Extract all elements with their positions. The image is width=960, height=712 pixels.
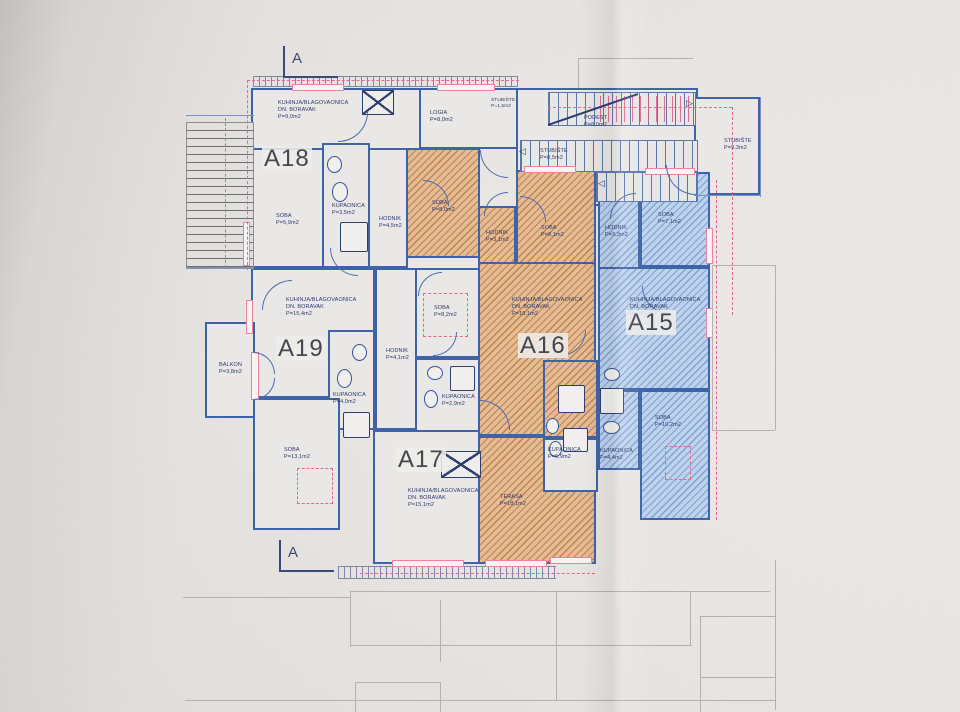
- window-10: [550, 557, 592, 564]
- window-11: [392, 560, 464, 567]
- roofline-6: [716, 180, 717, 520]
- soba-13-1-outline: [297, 468, 333, 504]
- sanitary-fixture-icon-10: [546, 418, 559, 434]
- lower-level-outline-17: [712, 430, 775, 431]
- roofline-0: [247, 80, 519, 81]
- exterior-line-2: [186, 115, 254, 116]
- lower-level-outline-19: [578, 58, 693, 59]
- sanitary-fixture-icon-3: [352, 344, 367, 361]
- window-7: [706, 228, 713, 264]
- room-label-29: ◁: [598, 178, 605, 190]
- room-label-17: HODNIKP=4,1m2: [386, 348, 409, 362]
- room-label-8: HODNIKP=4,5m2: [379, 216, 402, 230]
- roofline-1: [247, 80, 248, 270]
- room-label-21: KUPAONICAP=2,9m2: [442, 394, 475, 408]
- exterior-line-1: [694, 195, 761, 196]
- sanitary-fixture-icon-4: [337, 369, 352, 388]
- room-label-6: SOBAP=5,9m2: [276, 213, 299, 227]
- sanitary-fixture-icon-15: [603, 421, 620, 434]
- section-marker-line-v-1: [279, 540, 281, 571]
- lower-level-outline-5: [350, 645, 692, 646]
- room-label-15: BALKONP=3,8m2: [219, 362, 242, 376]
- room-label-12: HODNIKP=3,3m2: [605, 225, 628, 239]
- room-label-4: STUBIŠTEP=8,5m2: [540, 148, 568, 162]
- lower-level-outline-14: [712, 265, 775, 266]
- room-label-19: KUHINJA/BLAGOVAONICADN. BORAVAKP=15,1m2: [512, 297, 582, 318]
- lower-level-outline-16: [712, 265, 713, 430]
- room-label-11: SOBAP=8,1m2: [541, 225, 564, 239]
- lower-level-outline-4: [690, 591, 691, 645]
- sanitary-fixture-icon-7: [424, 390, 438, 408]
- lower-level-outline-1: [350, 591, 351, 647]
- window-0: [292, 84, 344, 91]
- section-marker-bottom: A: [288, 544, 298, 561]
- lower-level-outline-3: [556, 591, 557, 701]
- window-5: [524, 166, 576, 173]
- apartment-label-a16: A16: [518, 333, 568, 358]
- room-label-9: SOBAP=8,0m2: [432, 200, 455, 214]
- room-label-5: STUBIŠTEP=9,3m2: [724, 138, 752, 152]
- room-label-10: HODNIKP=3,1m2: [486, 230, 509, 244]
- lower-level-outline-13: [440, 682, 441, 712]
- sanitary-fixture-icon-1: [332, 182, 348, 202]
- lower-level-outline-8: [775, 560, 776, 710]
- room-label-23: KUPAONICAP=4,4m2: [600, 448, 633, 462]
- room-label-22: KUPAONICAP=5,9m2: [548, 447, 581, 461]
- roofline-2: [548, 107, 732, 108]
- room-label-25: SOBAP=13,1m2: [284, 447, 310, 461]
- room-label-14: KUHINJA/BLAGOVAONICADN. BORAVAKP=15,4m2: [286, 297, 356, 318]
- room-label-2: STUBIŠTEP=1,5m2: [491, 98, 515, 110]
- lower-level-outline-18: [183, 597, 351, 598]
- lower-level-outline-7: [700, 616, 701, 712]
- room-label-16: KUPAONICAP=4,0m2: [333, 392, 366, 406]
- apartment-label-a15: A15: [626, 310, 676, 335]
- lower-level-outline-15: [775, 265, 776, 430]
- room-label-26: KUHINJA/BLAGOVAONICADN. BORAVAKP=15,1m2: [408, 488, 478, 509]
- section-marker-line-h-1: [279, 570, 334, 572]
- lower-level-outline-12: [355, 682, 356, 712]
- room-label-1: LOGIAP=8,0m2: [430, 110, 453, 124]
- lower-level-outline-9: [700, 677, 776, 678]
- sanitary-fixture-icon-6: [427, 366, 443, 380]
- room-label-3: PODESTP=8,0m2: [584, 115, 607, 129]
- section-marker-top: A: [292, 50, 302, 67]
- door-swing-1: [480, 150, 508, 178]
- room-a18-hodnik: [368, 148, 408, 268]
- appliance-box-9: [558, 385, 585, 413]
- lower-level-outline-2: [440, 600, 441, 662]
- room-label-0: KUHINJA/BLAGOVAONICADN. BORAVAKP=9,0m2: [278, 100, 348, 121]
- room-a19-soba: [253, 398, 340, 530]
- exterior-line-0: [760, 97, 761, 197]
- apartment-label-a18: A18: [262, 146, 312, 171]
- appliance-box-14: [600, 388, 624, 414]
- lower-level-outline-10: [185, 700, 775, 701]
- roofline-4: [225, 118, 226, 268]
- window-1: [437, 84, 495, 91]
- floor-plan: KUHINJA/BLAGOVAONICADN. BORAVAKP=9,0m2LO…: [0, 0, 960, 712]
- room-label-24: SOBAP=10,2m2: [655, 415, 681, 429]
- lower-level-outline-11: [355, 682, 441, 683]
- lower-level-outline-0: [350, 591, 770, 592]
- room-label-7: KUPAONICAP=3,5m2: [332, 203, 365, 217]
- section-marker-line-v-0: [283, 46, 285, 77]
- window-9: [485, 560, 547, 567]
- roof-stair-dashed: [600, 96, 692, 122]
- lower-level-outline-6: [700, 616, 776, 617]
- room-label-13: SOBAP=7,1m2: [658, 212, 681, 226]
- roofline-5: [360, 573, 595, 574]
- window-3: [246, 300, 253, 334]
- room-label-30: ▷: [686, 98, 693, 110]
- apartment-label-a19: A19: [276, 336, 326, 361]
- sanitary-fixture-icon-13: [604, 368, 620, 381]
- room-label-18: SOBAP=8,2m2: [434, 305, 457, 319]
- soba-10-2-outline: [665, 446, 691, 480]
- room-label-28: ◁: [519, 146, 526, 158]
- shaft-a17-crossed-box-icon: [441, 451, 481, 478]
- room-label-27: TERASAP=18,1m2: [500, 494, 526, 508]
- section-marker-line-h-0: [283, 76, 338, 78]
- apartment-label-a17: A17: [396, 447, 446, 472]
- sanitary-fixture-icon-0: [327, 156, 342, 173]
- door-swing-3: [484, 192, 508, 216]
- lower-level-outline-20: [578, 58, 579, 88]
- appliance-box-8: [450, 366, 475, 391]
- exterior-line-3: [186, 268, 254, 269]
- appliance-box-5: [343, 412, 370, 438]
